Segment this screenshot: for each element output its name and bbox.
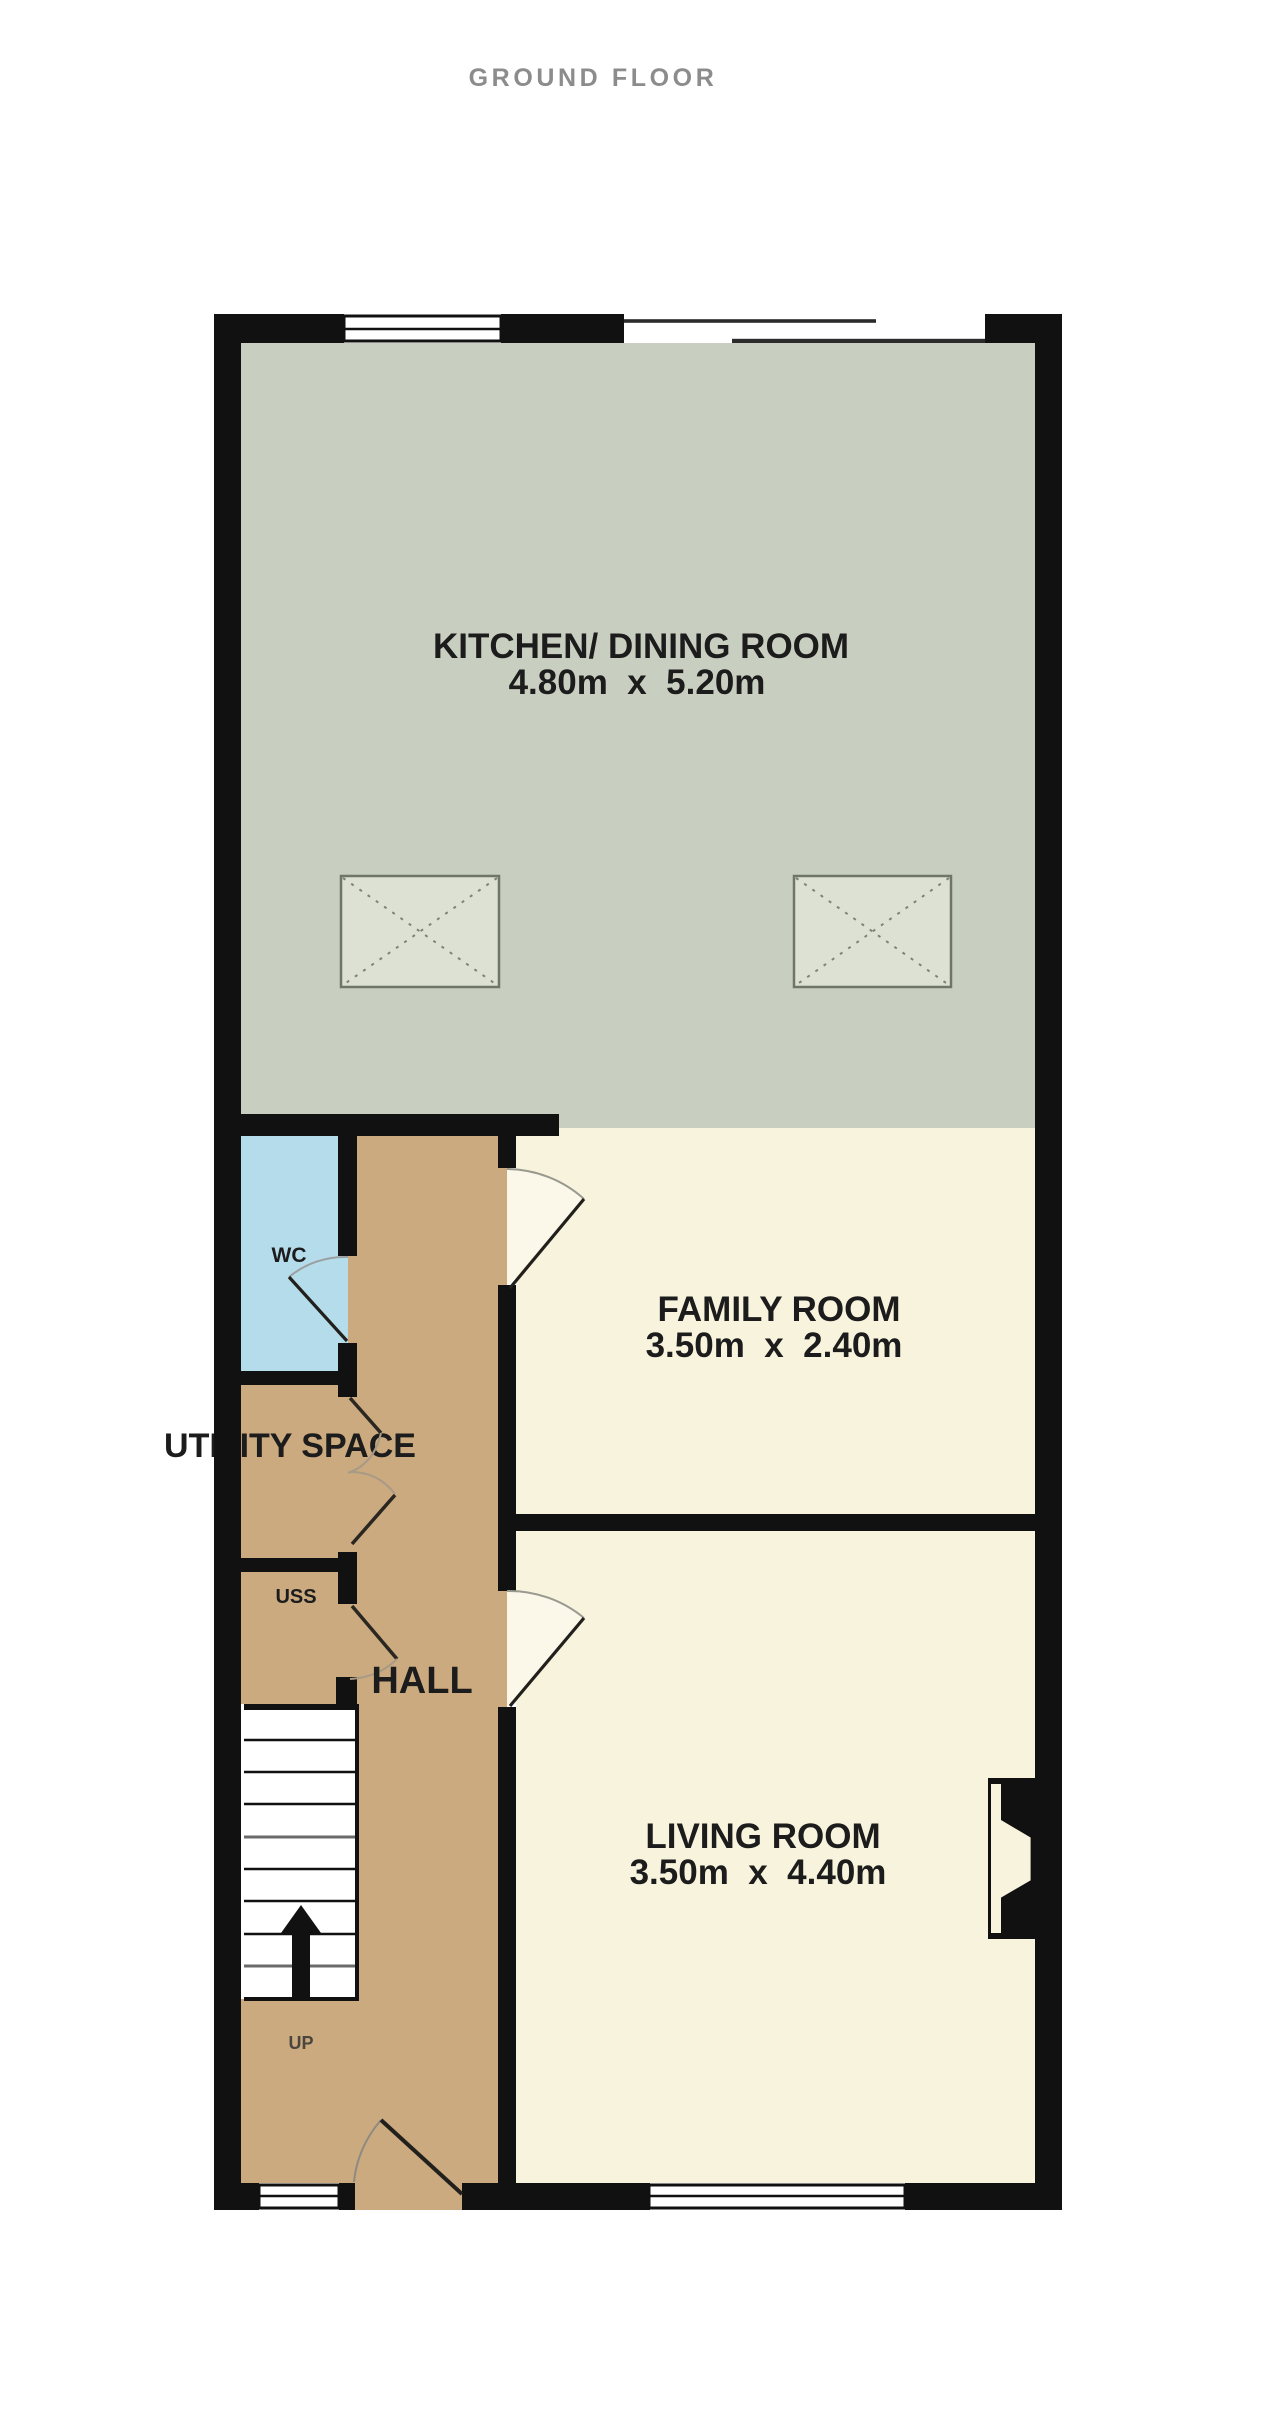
svg-text:KITCHEN/ DINING ROOM: KITCHEN/ DINING ROOM (433, 627, 849, 666)
svg-text:LIVING ROOM: LIVING ROOM (645, 1817, 880, 1856)
svg-text:GROUND FLOOR: GROUND FLOOR (469, 64, 718, 92)
svg-text:UP: UP (288, 2033, 313, 2053)
svg-text:HALL: HALL (371, 1660, 472, 1702)
svg-text:UTILITY SPACE: UTILITY SPACE (164, 1427, 416, 1465)
svg-text:4.80m x 5.20m: 4.80m x 5.20m (509, 663, 766, 702)
svg-text:3.50m x 4.40m: 3.50m x 4.40m (630, 1853, 887, 1892)
svg-text:FAMILY ROOM: FAMILY ROOM (657, 1290, 900, 1329)
svg-text:3.50m x 2.40m: 3.50m x 2.40m (646, 1326, 903, 1365)
svg-text:USS: USS (275, 1586, 316, 1608)
svg-text:WC: WC (272, 1244, 307, 1267)
